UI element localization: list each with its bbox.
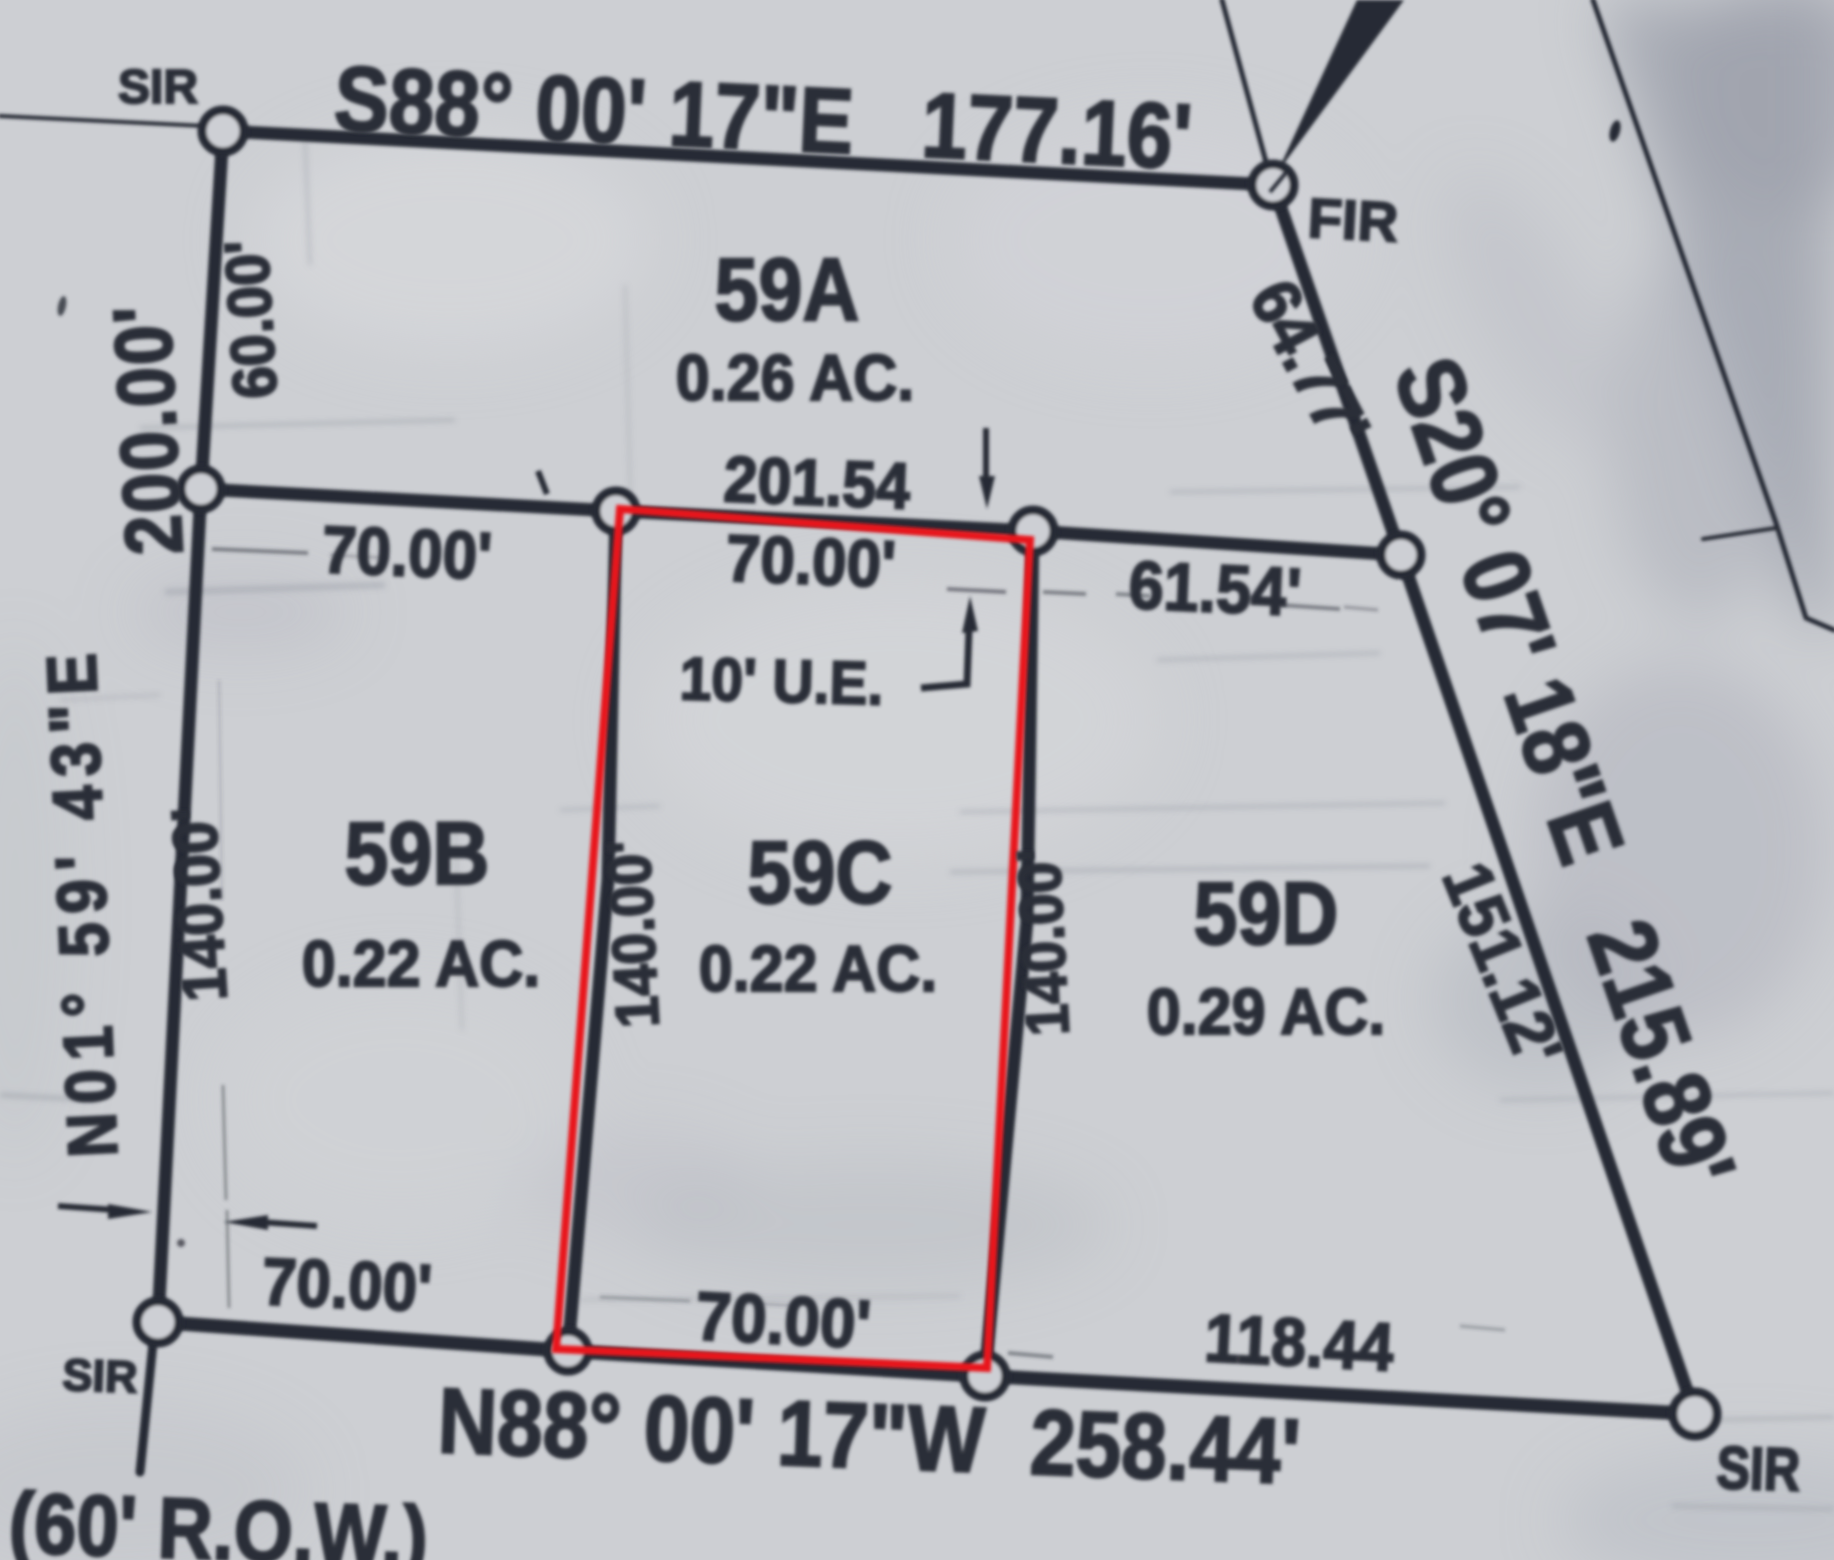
svg-text:70.00': 70.00' [261,1244,434,1326]
svg-text:201.54: 201.54 [722,443,911,523]
svg-text:0.22 AC.: 0.22 AC. [302,928,540,1000]
svg-text:140.00': 140.00' [158,805,240,1003]
svg-text:140.00': 140.00' [594,838,672,1029]
svg-text:61.54': 61.54' [1127,547,1303,630]
svg-text:0.26 AC.: 0.26 AC. [676,342,914,414]
svg-text:59C: 59C [748,823,893,923]
svg-text:140.00': 140.00' [1004,846,1082,1037]
svg-text:FIR: FIR [1306,186,1399,254]
svg-text:70.00': 70.00' [321,512,494,594]
svg-text:SIR: SIR [118,61,198,114]
svg-text:59A: 59A [715,240,860,340]
svg-text:70.00': 70.00' [725,521,898,602]
svg-text:200.00': 200.00' [96,302,200,558]
svg-text:60.00': 60.00' [211,238,290,401]
svg-text:10' U.E.: 10' U.E. [679,645,884,718]
svg-text:59D: 59D [1194,864,1339,964]
svg-text:0.22 AC.: 0.22 AC. [699,933,937,1005]
svg-text:59B: 59B [345,804,490,904]
svg-text:(60' R.O.W.): (60' R.O.W.) [7,1476,429,1560]
svg-text:SIR: SIR [1716,1434,1802,1504]
svg-text:SIR: SIR [62,1349,139,1403]
svg-text:118.44: 118.44 [1203,1300,1396,1385]
svg-text:70.00': 70.00' [694,1279,873,1365]
svg-text:0.29 AC.: 0.29 AC. [1147,976,1385,1048]
